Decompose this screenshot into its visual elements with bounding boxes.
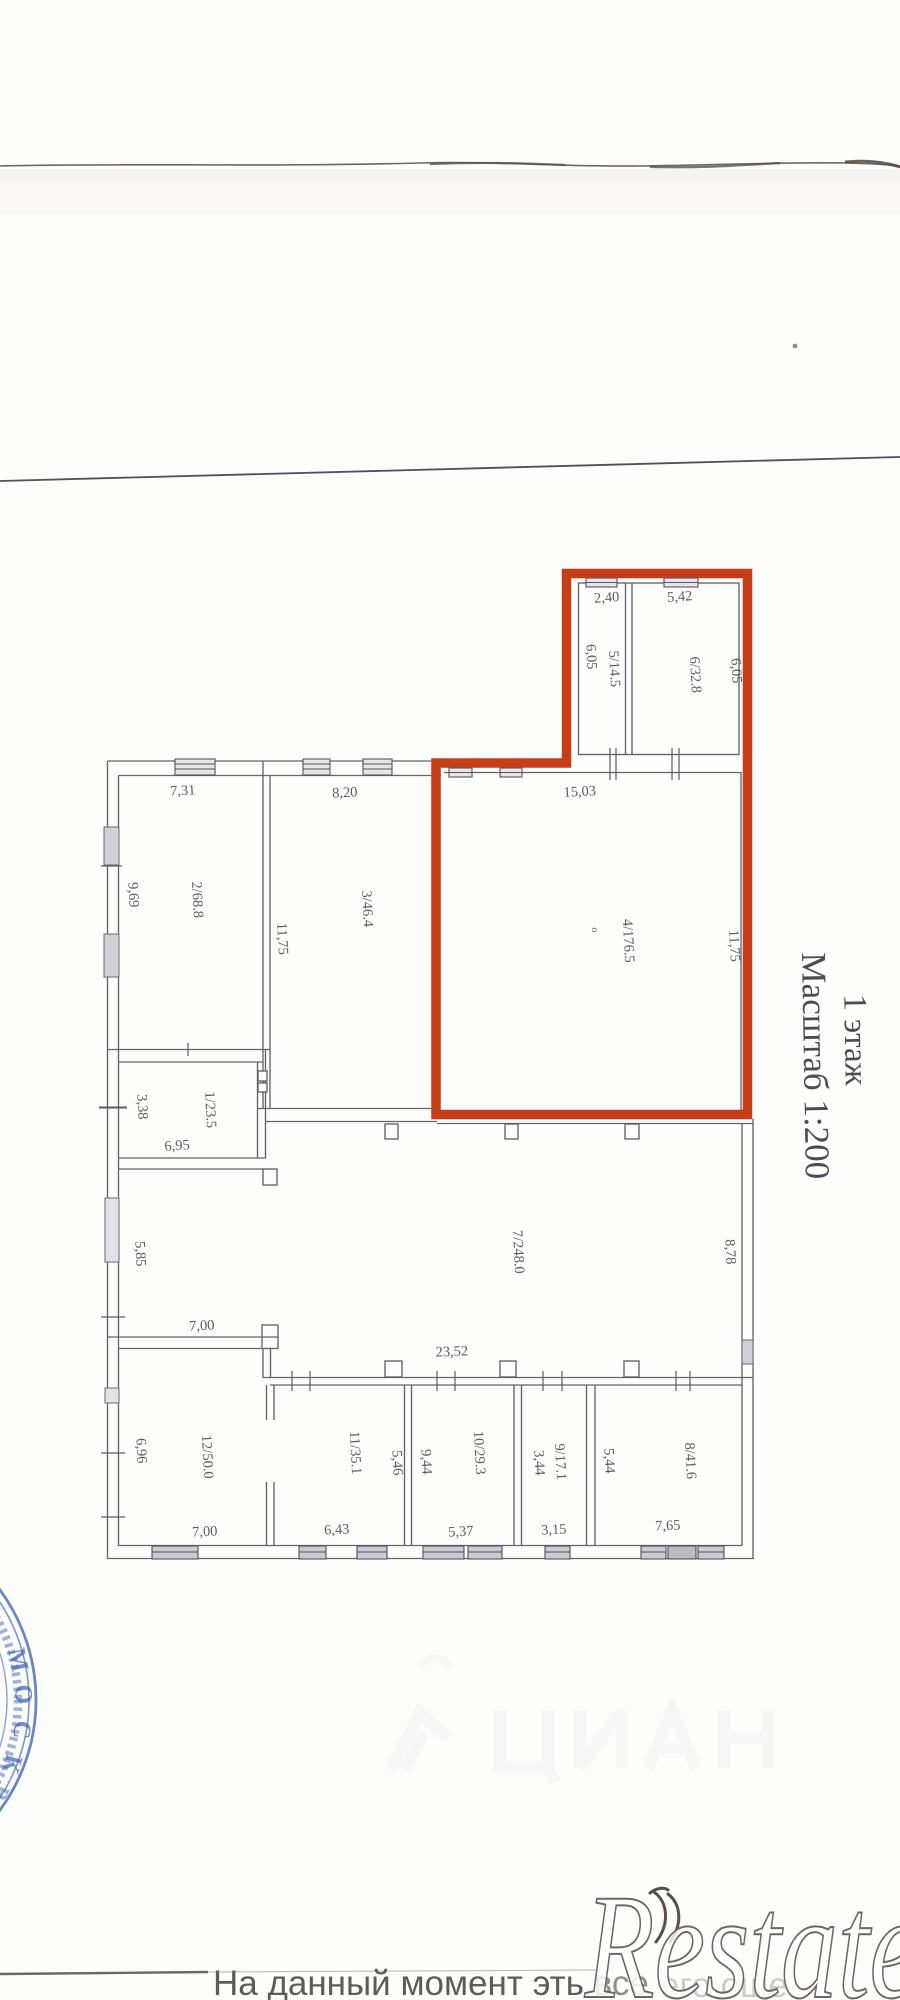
svg-text:5,46: 5,46 xyxy=(388,1450,405,1476)
svg-text:7,65: 7,65 xyxy=(655,1517,681,1534)
svg-text:6,05: 6,05 xyxy=(582,644,599,670)
svg-text:5/14.5: 5/14.5 xyxy=(605,650,623,687)
svg-text:3,38: 3,38 xyxy=(133,1094,150,1120)
svg-text:5,44: 5,44 xyxy=(600,1448,617,1475)
svg-text:11,75: 11,75 xyxy=(273,922,291,955)
svg-text:6,96: 6,96 xyxy=(132,1438,149,1464)
svg-text:8,20: 8,20 xyxy=(332,784,358,801)
svg-text:o: o xyxy=(589,927,600,933)
svg-text:3/46.4: 3/46.4 xyxy=(358,890,376,928)
svg-text:Restate: Restate xyxy=(584,1864,900,2000)
svg-text:8,78: 8,78 xyxy=(721,1239,738,1265)
svg-text:2,40: 2,40 xyxy=(594,589,620,607)
svg-text:23,52: 23,52 xyxy=(435,1343,468,1360)
svg-text:6/32.8: 6/32.8 xyxy=(686,656,704,693)
svg-text:7,00: 7,00 xyxy=(189,1317,215,1334)
svg-text:6,05: 6,05 xyxy=(727,658,744,684)
svg-text:На данный момент эть все: На данный момент эть все xyxy=(213,1964,649,2000)
svg-text:4/176.5: 4/176.5 xyxy=(619,918,637,963)
svg-text:9,69: 9,69 xyxy=(124,882,141,908)
svg-text:12/50.0: 12/50.0 xyxy=(198,1434,216,1479)
svg-text:7,31: 7,31 xyxy=(170,782,196,799)
svg-text:5,85: 5,85 xyxy=(131,1241,148,1267)
svg-text:9,44: 9,44 xyxy=(417,1449,434,1476)
svg-text:15,03: 15,03 xyxy=(563,783,596,801)
svg-text:1/23.5: 1/23.5 xyxy=(201,1091,219,1128)
svg-text:О: О xyxy=(9,1684,37,1705)
svg-text:11,75: 11,75 xyxy=(725,929,743,962)
svg-text:6,43: 6,43 xyxy=(324,1521,350,1538)
svg-text:7/248.0: 7/248.0 xyxy=(509,1229,527,1274)
svg-text:11/35.1: 11/35.1 xyxy=(346,1431,364,1475)
svg-text:7,00: 7,00 xyxy=(192,1523,218,1540)
svg-text:6,95: 6,95 xyxy=(164,1137,190,1155)
svg-text:2/68.8: 2/68.8 xyxy=(188,881,206,918)
svg-text:1 этаж: 1 этаж xyxy=(836,994,874,1086)
svg-text:С: С xyxy=(7,1719,36,1740)
svg-text:3,15: 3,15 xyxy=(541,1521,567,1538)
svg-text:5,42: 5,42 xyxy=(667,588,693,606)
svg-text:3,44: 3,44 xyxy=(530,1450,547,1477)
svg-text:5,37: 5,37 xyxy=(448,1523,474,1540)
svg-text:9/17.1: 9/17.1 xyxy=(551,1443,569,1480)
svg-text:Масштаб 1:200: Масштаб 1:200 xyxy=(794,952,837,1179)
svg-text:10/29.3: 10/29.3 xyxy=(470,1430,488,1475)
svg-text:8/41.6: 8/41.6 xyxy=(681,1442,699,1479)
